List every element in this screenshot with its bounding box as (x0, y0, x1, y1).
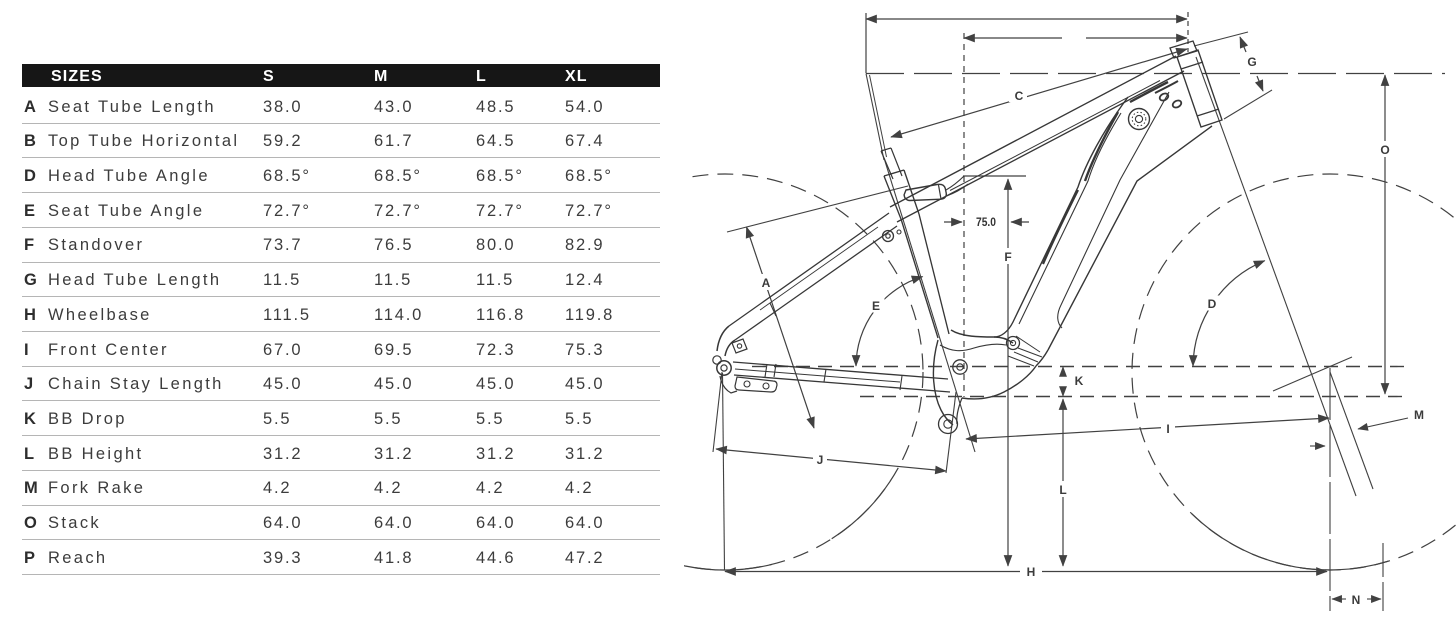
svg-text:75.0: 75.0 (976, 215, 996, 229)
svg-text:N: N (1352, 593, 1361, 607)
svg-text:J: J (817, 453, 824, 467)
svg-text:F: F (1004, 250, 1011, 264)
svg-text:K: K (1075, 374, 1084, 388)
svg-text:C: C (1015, 89, 1024, 103)
svg-text:L: L (1059, 483, 1066, 497)
svg-text:G: G (1247, 55, 1256, 69)
svg-text:D: D (1208, 297, 1217, 311)
svg-text:E: E (872, 299, 880, 313)
svg-text:A: A (762, 276, 771, 290)
svg-text:M: M (1414, 408, 1424, 422)
svg-text:I: I (1166, 422, 1169, 436)
svg-text:H: H (1027, 565, 1036, 579)
svg-text:O: O (1380, 143, 1389, 157)
